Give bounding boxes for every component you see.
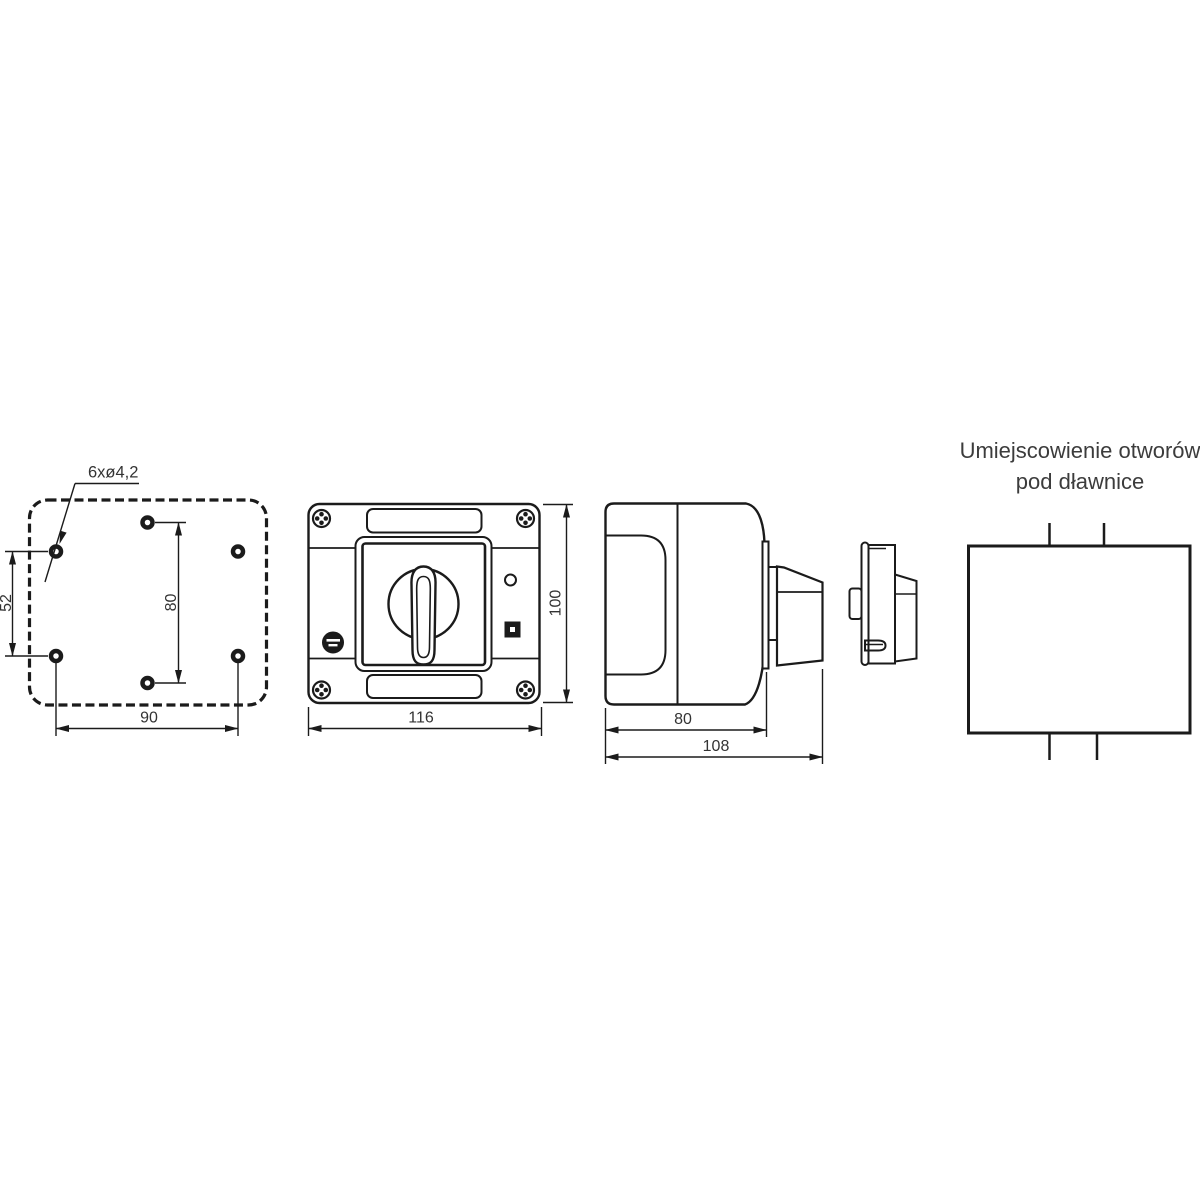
drawing-title-line2: pod dławnice bbox=[1016, 469, 1144, 494]
hole-top-right bbox=[233, 547, 243, 557]
dimension-52: 52 bbox=[0, 552, 48, 657]
technical-drawing-page: 6xø4,2 52 80 90 bbox=[0, 0, 1200, 1200]
hole-callout: 6xø4,2 bbox=[45, 464, 139, 583]
knob-handle-outer bbox=[411, 567, 435, 665]
cover-shaft-stub bbox=[850, 589, 862, 620]
dim-52-label: 52 bbox=[0, 594, 15, 612]
cover-body bbox=[869, 545, 896, 664]
mounting-plate-outline bbox=[30, 500, 267, 705]
switch-enclosure-drawing: 6xø4,2 52 80 90 bbox=[0, 0, 1200, 1200]
drawing-title-line1: Umiejscowienie otworów bbox=[960, 438, 1200, 463]
hole-bottom-right bbox=[233, 651, 243, 661]
hole-bottom-left bbox=[51, 651, 61, 661]
dimension-100: 100 bbox=[543, 505, 573, 703]
dimension-80-plate: 80 bbox=[155, 523, 186, 684]
leader-arrowhead bbox=[60, 531, 67, 544]
dimension-90: 90 bbox=[56, 662, 238, 736]
side-knob-profile bbox=[777, 567, 823, 666]
hole-bottom-middle bbox=[143, 678, 153, 688]
dim-80-depth-label: 80 bbox=[674, 711, 692, 728]
dim-116-label: 116 bbox=[408, 710, 434, 727]
view-side: 80 108 bbox=[606, 504, 823, 765]
side-cover-profile bbox=[606, 536, 666, 675]
mounting-holes bbox=[51, 518, 243, 689]
dimension-108: 108 bbox=[606, 669, 823, 764]
square-aperture-icon bbox=[505, 622, 521, 638]
view-mounting-plate: 6xø4,2 52 80 90 bbox=[0, 464, 267, 737]
dim-100-label: 100 bbox=[548, 590, 565, 617]
cover-knob-profile bbox=[895, 575, 917, 662]
dimension-80-depth: 80 bbox=[606, 672, 767, 764]
dim-108-label: 108 bbox=[703, 738, 730, 755]
dimension-116: 116 bbox=[309, 707, 542, 736]
gland-hole-ticks bbox=[1050, 523, 1105, 760]
view-gland-plate: Umiejscowienie otworów pod dławnice bbox=[960, 438, 1200, 760]
hole-callout-label: 6xø4,2 bbox=[88, 464, 138, 482]
view-front: 116 100 bbox=[309, 504, 574, 736]
hole-top-middle bbox=[143, 518, 153, 528]
leader-line bbox=[45, 484, 75, 583]
dim-80-plate-label: 80 bbox=[163, 594, 180, 612]
side-knob-shaft bbox=[769, 567, 778, 640]
ip-rating-badge-icon bbox=[323, 633, 343, 653]
dim-90-label: 90 bbox=[140, 710, 158, 727]
view-cover-profile bbox=[850, 543, 917, 666]
gland-plate-outline bbox=[969, 546, 1191, 733]
